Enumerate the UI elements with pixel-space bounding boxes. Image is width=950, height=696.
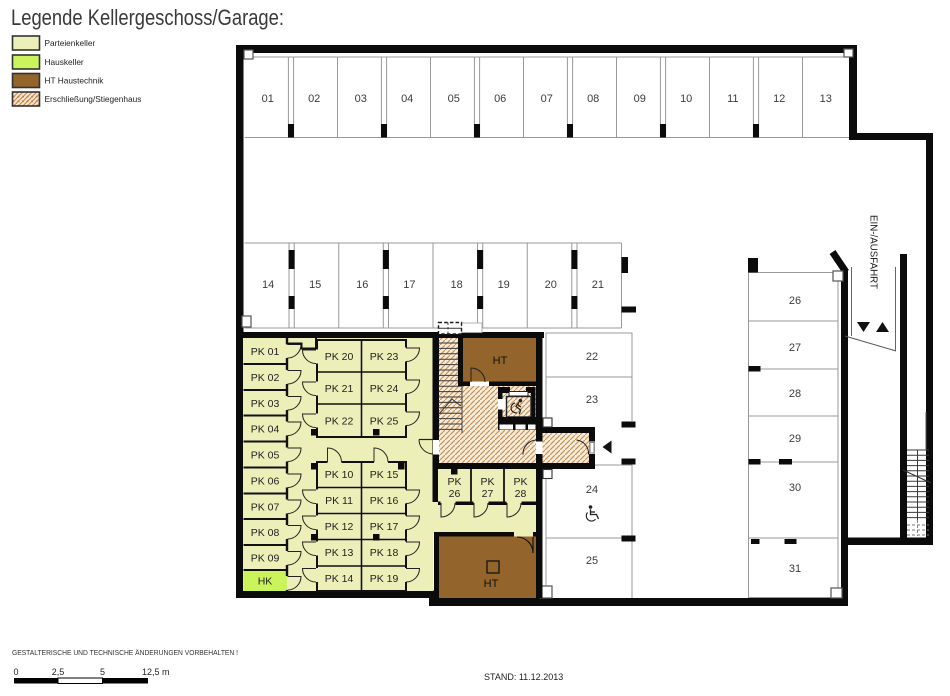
svg-text:03: 03 — [355, 93, 367, 105]
svg-text:14: 14 — [262, 279, 274, 291]
svg-text:16: 16 — [356, 279, 368, 291]
svg-text:Erschließung/Stiegenhaus: Erschließung/Stiegenhaus — [45, 94, 142, 104]
svg-text:PK: PK — [447, 476, 461, 488]
svg-text:HK: HK — [258, 576, 273, 588]
svg-text:27: 27 — [482, 488, 494, 500]
svg-text:18: 18 — [450, 279, 462, 291]
svg-text:12,5 m: 12,5 m — [142, 667, 170, 677]
svg-text:06: 06 — [494, 93, 506, 105]
svg-text:20: 20 — [545, 279, 557, 291]
svg-text:PK 18: PK 18 — [370, 547, 399, 559]
svg-text:13: 13 — [820, 93, 832, 105]
svg-text:HT Haustechnik: HT Haustechnik — [45, 76, 105, 86]
svg-text:PK 01: PK 01 — [251, 346, 280, 358]
svg-text:PK 03: PK 03 — [251, 398, 280, 410]
svg-text:09: 09 — [634, 93, 646, 105]
svg-text:PK 10: PK 10 — [325, 469, 354, 481]
svg-text:19: 19 — [498, 279, 510, 291]
svg-text:PK 04: PK 04 — [251, 424, 280, 436]
svg-text:PK 14: PK 14 — [325, 573, 354, 585]
svg-text:Parteienkeller: Parteienkeller — [45, 38, 96, 48]
svg-text:22: 22 — [586, 351, 598, 363]
svg-text:23: 23 — [586, 394, 598, 406]
svg-text:GESTALTERISCHE UND TECHNISCHE: GESTALTERISCHE UND TECHNISCHE ÄNDERUNGEN… — [12, 649, 238, 657]
svg-text:10: 10 — [680, 93, 692, 105]
svg-text:PK 17: PK 17 — [370, 521, 399, 533]
svg-text:31: 31 — [789, 563, 801, 575]
svg-text:PK 12: PK 12 — [325, 521, 354, 533]
svg-text:PK 02: PK 02 — [251, 372, 280, 384]
svg-text:EIN-/AUSFAHRT: EIN-/AUSFAHRT — [868, 215, 880, 290]
svg-text:STAND: 11.12.2013: STAND: 11.12.2013 — [484, 672, 563, 682]
svg-text:PK 21: PK 21 — [325, 383, 354, 395]
svg-text:26: 26 — [789, 295, 801, 307]
svg-text:PK 05: PK 05 — [251, 450, 280, 462]
svg-text:Legende Kellergeschoss/Garage:: Legende Kellergeschoss/Garage: — [11, 5, 284, 30]
svg-text:29: 29 — [789, 433, 801, 445]
svg-text:01: 01 — [262, 93, 274, 105]
svg-text:PK 25: PK 25 — [370, 416, 399, 428]
svg-text:30: 30 — [789, 482, 801, 494]
svg-text:PK 06: PK 06 — [251, 476, 280, 488]
svg-text:PK 11: PK 11 — [325, 495, 353, 507]
svg-text:15: 15 — [309, 279, 321, 291]
svg-text:28: 28 — [789, 388, 801, 400]
svg-text:PK 09: PK 09 — [251, 553, 280, 565]
svg-text:PK 08: PK 08 — [251, 527, 280, 539]
svg-text:27: 27 — [789, 342, 801, 354]
svg-text:11: 11 — [727, 93, 738, 105]
svg-text:PK 15: PK 15 — [370, 469, 399, 481]
svg-text:12: 12 — [773, 93, 785, 105]
svg-text:24: 24 — [586, 484, 598, 496]
svg-text:08: 08 — [587, 93, 599, 105]
svg-text:PK 22: PK 22 — [325, 416, 354, 428]
svg-text:07: 07 — [541, 93, 553, 105]
svg-text:21: 21 — [592, 279, 604, 291]
svg-text:PK 24: PK 24 — [370, 383, 399, 395]
svg-text:5: 5 — [100, 667, 105, 677]
svg-text:26: 26 — [449, 488, 461, 500]
svg-text:PK 20: PK 20 — [325, 351, 354, 363]
svg-text:HT: HT — [493, 355, 508, 367]
svg-text:28: 28 — [515, 488, 527, 500]
svg-text:05: 05 — [448, 93, 460, 105]
svg-text:HT: HT — [484, 578, 499, 590]
svg-text:2,5: 2,5 — [52, 667, 65, 677]
svg-text:PK 23: PK 23 — [370, 351, 399, 363]
svg-text:Hauskeller: Hauskeller — [45, 57, 84, 67]
svg-text:0: 0 — [13, 667, 18, 677]
svg-text:17: 17 — [403, 279, 415, 291]
svg-text:PK 07: PK 07 — [251, 501, 280, 513]
svg-text:02: 02 — [308, 93, 320, 105]
svg-text:PK 13: PK 13 — [325, 547, 354, 559]
svg-text:04: 04 — [401, 93, 413, 105]
svg-text:PK: PK — [480, 476, 494, 488]
svg-text:PK 16: PK 16 — [370, 495, 399, 507]
svg-text:PK: PK — [513, 476, 527, 488]
svg-text:25: 25 — [586, 555, 598, 567]
svg-text:PK 19: PK 19 — [370, 573, 399, 585]
